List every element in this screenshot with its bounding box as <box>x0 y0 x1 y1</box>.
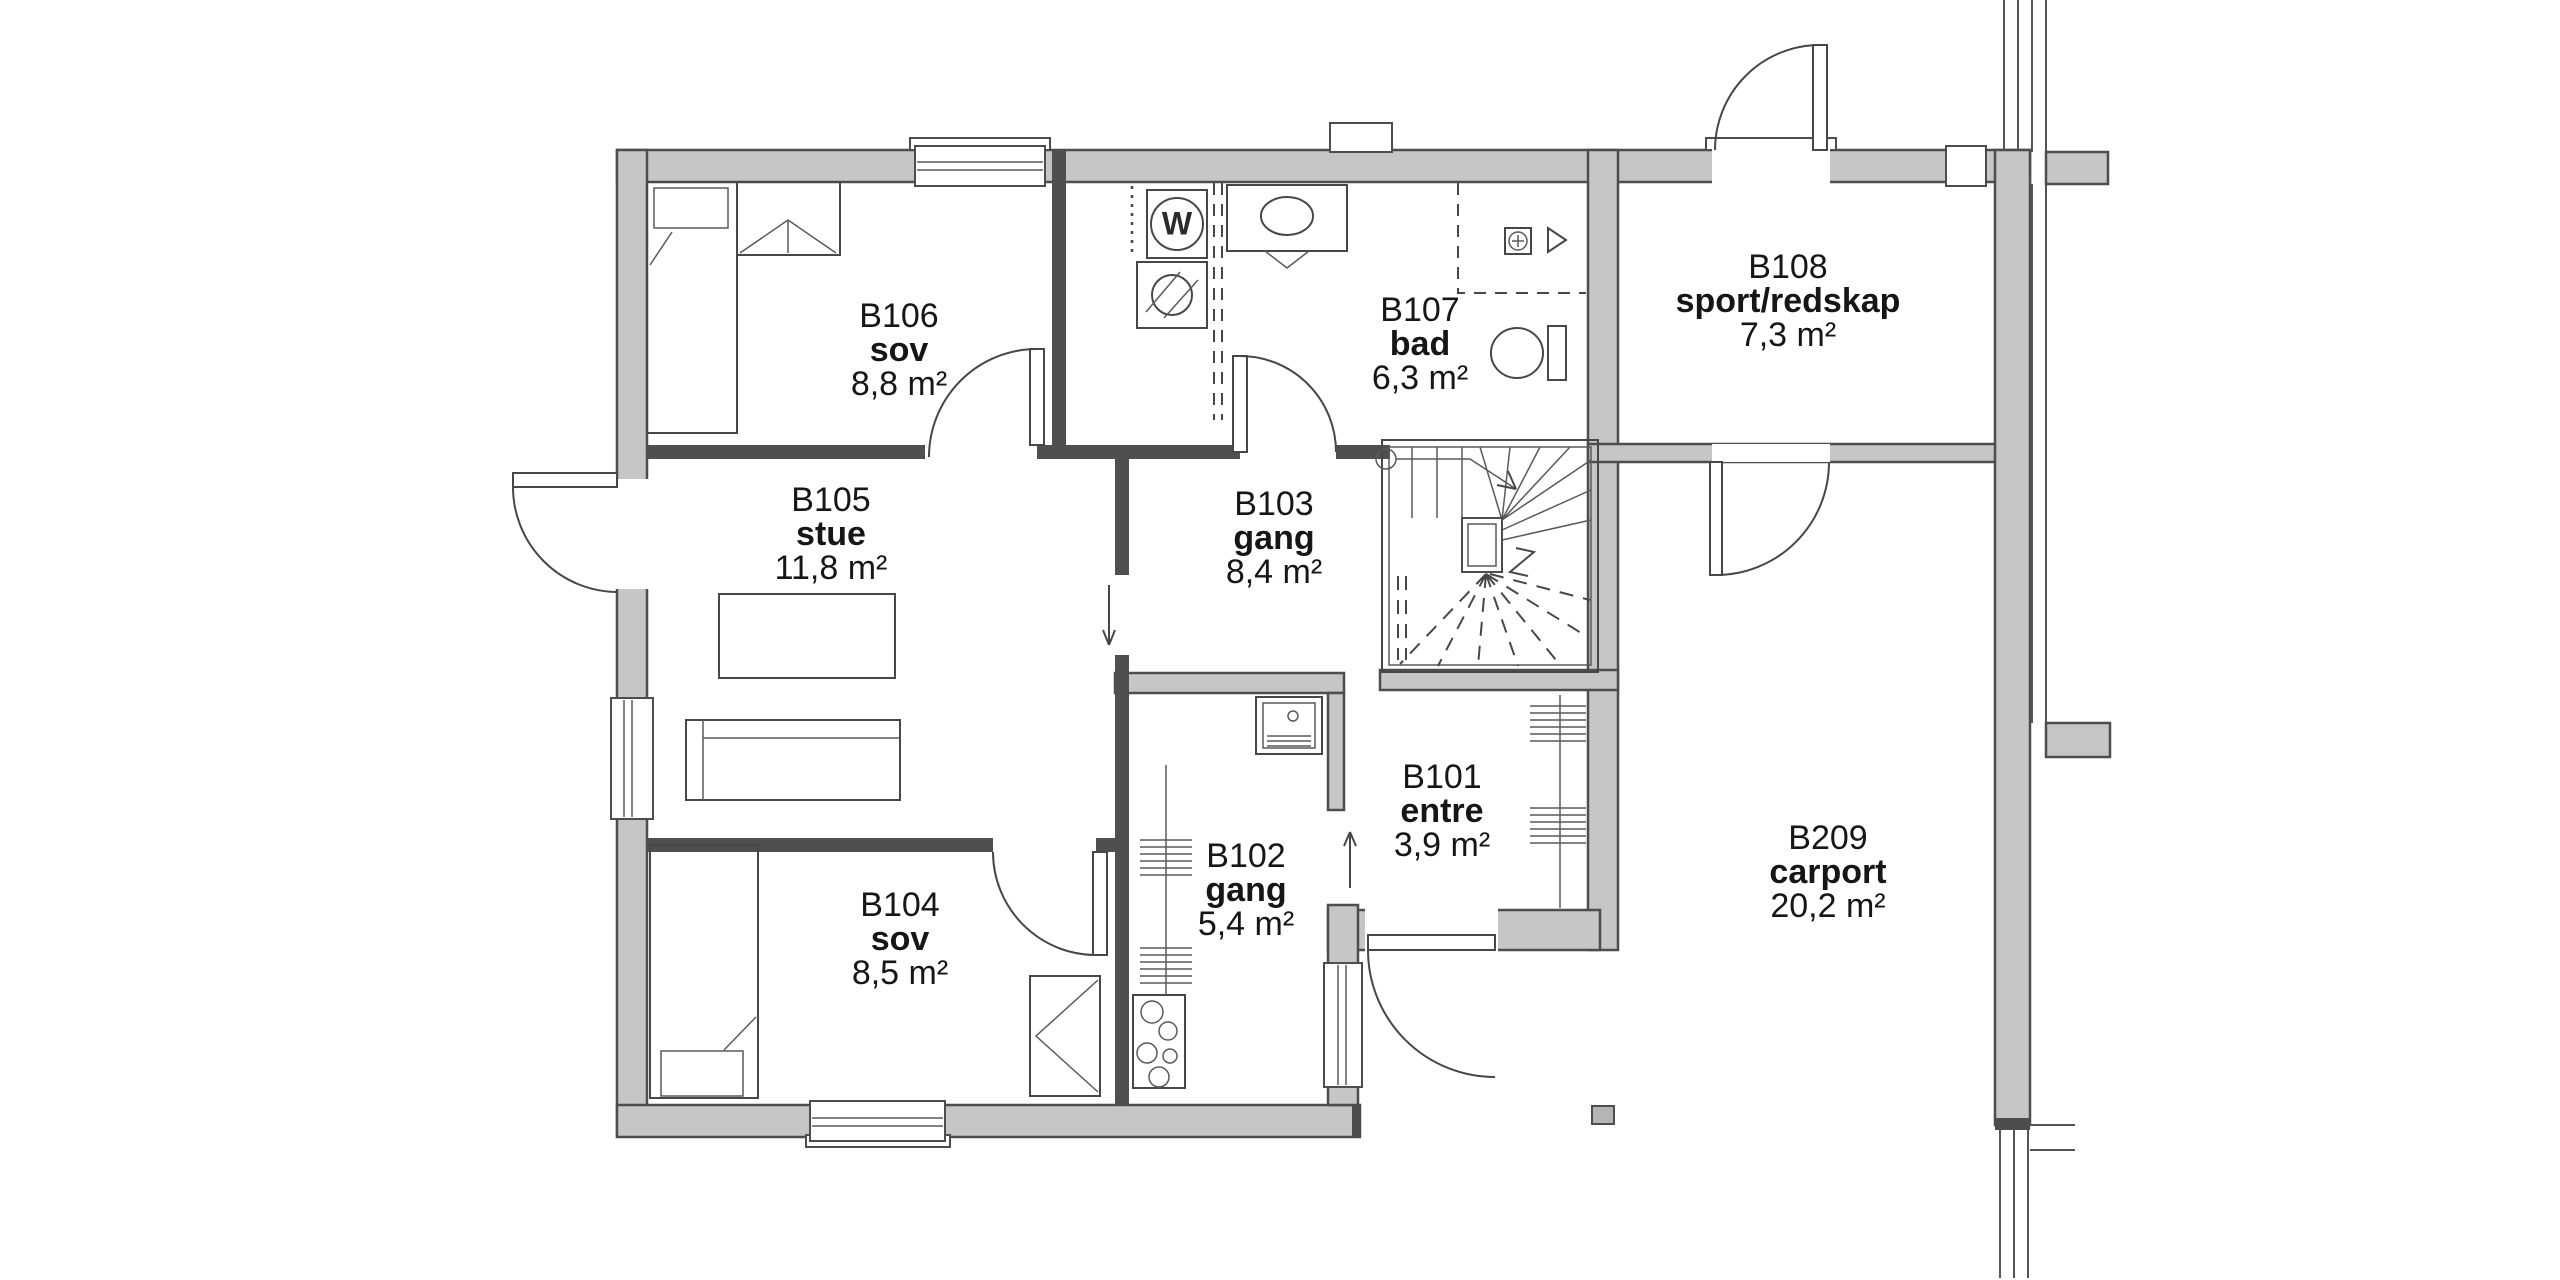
door-leaf-b108-north <box>1813 45 1827 150</box>
toilet-bowl-icon <box>1491 328 1543 378</box>
wall-b102-east-upper <box>1328 693 1344 810</box>
door-opening-b108-south <box>1712 444 1830 462</box>
passage-arrow-stue <box>1103 585 1115 645</box>
door-arc-b108-north <box>1715 45 1820 150</box>
door-arc-b108-south <box>1716 462 1829 575</box>
washing-machine-symbol: W <box>1162 205 1193 241</box>
vanity-counter <box>1227 185 1347 251</box>
stair-treads-below-dashed <box>1400 574 1590 666</box>
window-b104 <box>810 1101 945 1141</box>
table-b105 <box>719 594 895 678</box>
room-labels: B106sov8,8 m²B107bad6,3 m²B108sport/reds… <box>775 248 1901 992</box>
shower-drain-cross <box>1512 235 1524 247</box>
room-label-area: 20,2 m² <box>1770 887 1885 925</box>
wall-b106-south-2 <box>1037 445 1052 459</box>
room-label-id: B108 <box>1748 248 1827 286</box>
room-label-name: gang <box>1205 871 1286 909</box>
party-wall-lines-top <box>2004 0 2046 152</box>
valve-triangle-icon <box>1548 228 1566 252</box>
stair-treads-straight <box>1412 447 1462 518</box>
wall-post <box>1946 146 1986 186</box>
shower-zone-dashed <box>1458 183 1586 293</box>
room-label-id: B103 <box>1234 485 1313 523</box>
burner-icon-3 <box>1137 1043 1157 1063</box>
b105-furniture <box>686 585 1115 800</box>
burner-icon-4 <box>1163 1049 1177 1063</box>
zone-divider-dashed <box>1214 183 1222 420</box>
room-label-area: 5,4 m² <box>1198 905 1294 943</box>
wall-b104-north-2 <box>1096 838 1115 852</box>
door-arc-entre <box>1368 950 1495 1077</box>
door-leaf-stue <box>513 473 617 487</box>
stair-break-line <box>1510 548 1534 576</box>
wall-west <box>617 150 647 1135</box>
room-label-area: 7,3 m² <box>1740 316 1836 354</box>
room-label-name: sov <box>871 920 930 958</box>
washbasin-icon <box>1261 197 1313 235</box>
floor-drain-box <box>1137 262 1207 328</box>
party-wall-east <box>1995 150 2030 1125</box>
room-label-name: bad <box>1390 325 1450 363</box>
bed-b106-pillow <box>654 188 728 228</box>
wall-b106-east <box>1052 150 1066 459</box>
floor-plan-drawing: W <box>0 0 2560 1280</box>
burner-icon-1 <box>1141 1001 1163 1023</box>
wall-bad-south-1 <box>1066 445 1240 459</box>
doors <box>513 45 1829 1077</box>
door-opening-stue <box>615 479 649 589</box>
burner-icon-5 <box>1149 1067 1169 1087</box>
passage-arrow-entre <box>1344 832 1356 888</box>
room-label-id: B104 <box>860 886 939 924</box>
burner-icon-2 <box>1159 1022 1177 1040</box>
room-label-area: 8,4 m² <box>1226 553 1322 591</box>
wardrobe-b106-mark <box>740 220 836 253</box>
sofa-b105 <box>686 720 900 800</box>
wall-corridor-west-1 <box>1115 459 1129 575</box>
floor-drain-swirl <box>1146 272 1198 318</box>
window-b102 <box>1324 963 1362 1087</box>
carport-post <box>1592 1106 1614 1124</box>
bed-b104-fold <box>724 1017 756 1050</box>
room-label-name: entre <box>1400 792 1483 830</box>
room-label-area: 8,5 m² <box>852 954 948 992</box>
room-label-name: gang <box>1233 519 1314 557</box>
door-leaf-b104 <box>1093 852 1107 955</box>
bathroom-fixtures: W <box>1132 183 1586 420</box>
room-label-area: 8,8 m² <box>851 365 947 403</box>
bed-b106 <box>647 182 737 433</box>
stair-rail-dashed <box>1398 576 1406 660</box>
neighbour-stub-top <box>2046 152 2108 184</box>
closet-hatch-upper <box>1530 706 1586 741</box>
room-label-name: carport <box>1769 853 1886 891</box>
room-label-area: 11,8 m² <box>775 549 888 587</box>
door-arc-b104 <box>993 852 1096 955</box>
room-label-id: B102 <box>1206 837 1285 875</box>
door-leaf-entre <box>1368 935 1495 950</box>
stairs <box>1376 440 1598 672</box>
door-leaf-b106 <box>1030 349 1044 445</box>
wall-south <box>617 1105 1360 1137</box>
door-leaf-bad <box>1233 356 1247 452</box>
closet-hatch-lower <box>1530 808 1586 843</box>
room-label-id: B209 <box>1788 819 1867 857</box>
bed-b106-fold <box>650 232 672 265</box>
door-arc-stue <box>513 487 618 592</box>
bed-b104 <box>650 845 758 1098</box>
room-label-id: B107 <box>1380 291 1459 329</box>
door-leaf-b108-south <box>1710 462 1722 575</box>
sofa-b105-detail <box>703 720 900 800</box>
door-arc-bad <box>1240 356 1336 452</box>
room-label-id: B106 <box>859 297 938 335</box>
kitchen-faucet-icon <box>1288 711 1298 721</box>
window-b106 <box>915 146 1045 186</box>
wall-b102-north <box>1115 673 1344 693</box>
wall-east-core <box>1588 150 1618 950</box>
room-label-name: sport/redskap <box>1676 282 1901 320</box>
party-wall-cap <box>1995 1118 2030 1130</box>
wall-south-cap <box>1352 1105 1360 1137</box>
neighbour-wall-mid <box>2032 184 2046 723</box>
party-wall-lines-bottom <box>2000 1125 2075 1278</box>
wardrobe-b104 <box>1030 976 1100 1096</box>
neighbour-stub-mid <box>2046 723 2110 757</box>
room-label-name: stue <box>796 515 866 553</box>
room-label-area: 6,3 m² <box>1372 359 1468 397</box>
room-label-id: B105 <box>791 481 870 519</box>
door-opening-b108-north <box>1712 148 1830 184</box>
roof-vent <box>1330 123 1392 152</box>
wall-corridor-west-2 <box>1115 655 1129 1105</box>
floor-plan-canvas: W <box>0 0 2560 1280</box>
room-label-name: sov <box>870 331 929 369</box>
kitchen-sink-drain-lines <box>1267 736 1311 746</box>
wardrobe-b104-mark <box>1036 980 1098 1092</box>
vanity-front-mark <box>1265 251 1309 268</box>
wall-b106-south-1 <box>647 445 925 459</box>
bed-b104-pillow <box>661 1051 743 1096</box>
b106-furniture <box>647 182 840 433</box>
room-label-id: B101 <box>1402 758 1481 796</box>
toilet-tank <box>1548 326 1566 380</box>
room-label-area: 3,9 m² <box>1394 826 1490 864</box>
